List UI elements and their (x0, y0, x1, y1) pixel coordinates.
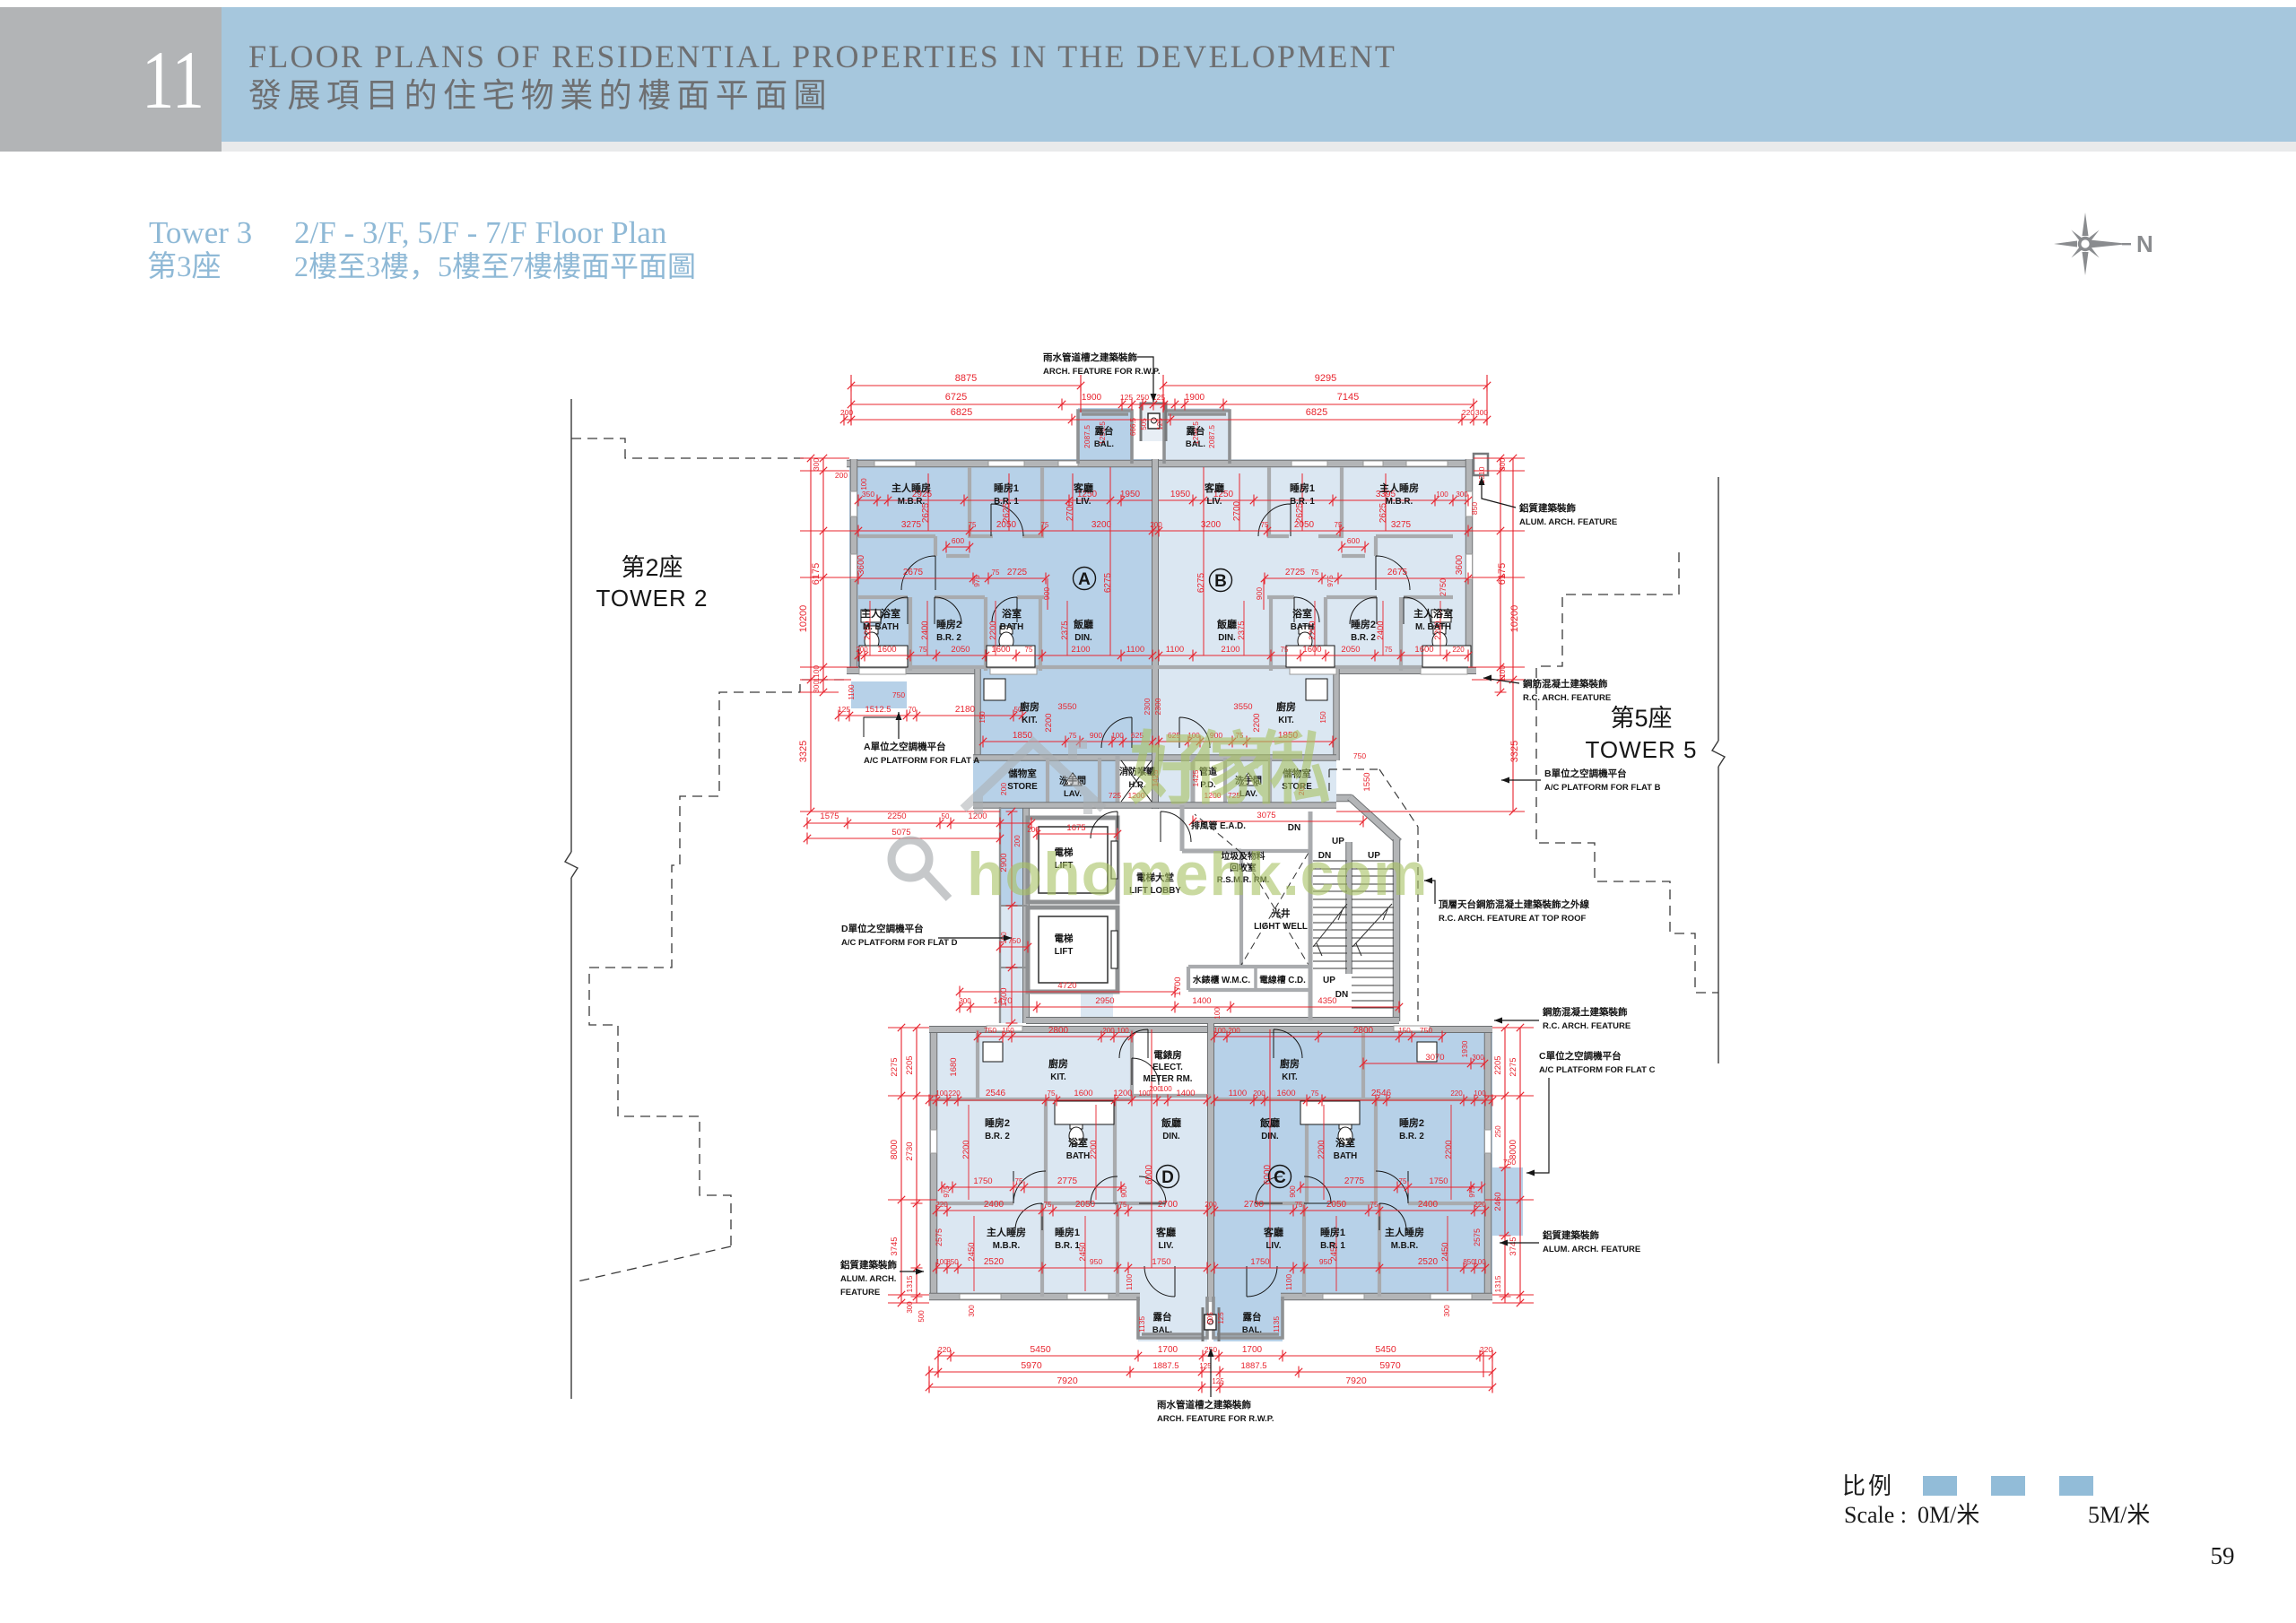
svg-text:客廳: 客廳 (1204, 482, 1224, 494)
svg-text:2450: 2450 (967, 1242, 977, 1261)
svg-text:2700: 2700 (1244, 1200, 1265, 1210)
svg-text:2950: 2950 (1095, 996, 1114, 1006)
svg-text:1887.5: 1887.5 (1240, 1361, 1266, 1371)
svg-text:主人睡房: 主人睡房 (1385, 1226, 1424, 1238)
svg-text:LIV.: LIV. (1158, 1241, 1173, 1251)
svg-text:150: 150 (1319, 711, 1327, 724)
svg-text:2087.5: 2087.5 (1207, 425, 1216, 448)
svg-text:FLOOR PLANS OF RESIDENTIAL PRO: FLOOR PLANS OF RESIDENTIAL PROPERTIES IN… (248, 39, 1396, 74)
svg-text:100: 100 (1117, 1027, 1129, 1035)
svg-text:M. BATH: M. BATH (1415, 622, 1451, 632)
svg-text:2200: 2200 (1044, 713, 1054, 732)
svg-text:發展項目的住宅物業的樓面平面圖: 發展項目的住宅物業的樓面平面圖 (248, 77, 832, 115)
svg-text:300: 300 (968, 1305, 976, 1317)
svg-text:鋁質建築裝飾: 鋁質建築裝飾 (1542, 1229, 1599, 1241)
svg-text:2725: 2725 (1285, 568, 1306, 577)
svg-text:廚房: 廚房 (1276, 700, 1296, 713)
svg-text:3600: 3600 (857, 554, 866, 575)
svg-text:220: 220 (935, 1201, 948, 1209)
svg-text:300: 300 (1498, 458, 1507, 471)
svg-text:2200: 2200 (1317, 1140, 1326, 1159)
svg-text:BAL.: BAL. (1186, 439, 1205, 449)
svg-text:STORE: STORE (1007, 782, 1038, 792)
svg-text:電錶房: 電錶房 (1153, 1049, 1182, 1061)
svg-text:2200: 2200 (961, 1140, 971, 1159)
svg-text:100: 100 (1160, 1085, 1172, 1093)
svg-text:1550: 1550 (1362, 772, 1372, 791)
svg-text:2800: 2800 (1048, 1026, 1069, 1036)
svg-text:75: 75 (1048, 1089, 1056, 1098)
svg-text:2750: 2750 (1439, 578, 1448, 596)
svg-text:頂層天台鋼筋混凝土建築裝飾之外線: 頂層天台鋼筋混凝土建築裝飾之外線 (1439, 898, 1589, 910)
svg-text:1887.5: 1887.5 (1152, 1361, 1178, 1371)
svg-text:3745: 3745 (890, 1237, 900, 1255)
svg-text:B.R. 2: B.R. 2 (985, 1132, 1010, 1141)
svg-text:220: 220 (1462, 408, 1474, 417)
svg-text:2700: 2700 (1158, 1200, 1178, 1210)
svg-text:250: 250 (1136, 393, 1149, 402)
svg-text:ARCH. FEATURE FOR R.W.P.: ARCH. FEATURE FOR R.W.P. (1157, 1414, 1274, 1424)
svg-text:100: 100 (935, 1089, 948, 1098)
svg-text:3550: 3550 (1057, 702, 1076, 712)
svg-text:主人睡房: 主人睡房 (1379, 482, 1419, 494)
svg-text:9295: 9295 (1315, 373, 1336, 384)
svg-text:B.R. 2: B.R. 2 (1351, 633, 1376, 643)
svg-text:300: 300 (1472, 1054, 1484, 1062)
svg-text:10200: 10200 (798, 605, 809, 633)
svg-text:浴室: 浴室 (1292, 607, 1312, 620)
svg-text:BATH: BATH (1066, 1151, 1090, 1161)
svg-text:220: 220 (948, 1089, 961, 1098)
svg-text:2575: 2575 (1473, 1228, 1482, 1246)
svg-text:300: 300 (1443, 1305, 1451, 1317)
svg-text:2087.5: 2087.5 (1083, 425, 1091, 448)
svg-text:TOWER 2: TOWER 2 (596, 585, 709, 612)
svg-text:200: 200 (1027, 826, 1039, 834)
svg-text:1100: 1100 (1284, 1274, 1293, 1291)
svg-text:10200: 10200 (1509, 605, 1520, 633)
svg-text:2200: 2200 (1444, 1140, 1454, 1159)
svg-text:雨水管道槽之建築裝飾: 雨水管道槽之建築裝飾 (1157, 1399, 1251, 1410)
svg-text:900: 900 (1120, 1185, 1128, 1198)
svg-text:1600: 1600 (991, 645, 1010, 655)
svg-text:7920: 7920 (1345, 1376, 1367, 1386)
svg-text:睡房1: 睡房1 (1055, 1226, 1080, 1238)
svg-text:2050: 2050 (1326, 1200, 1347, 1210)
svg-text:A/C PLATFORM FOR FLAT A: A/C PLATFORM FOR FLAT A (864, 756, 979, 766)
svg-text:2205: 2205 (1493, 1055, 1503, 1074)
svg-text:B.R. 2: B.R. 2 (936, 633, 961, 643)
svg-text:電梯: 電梯 (1055, 933, 1074, 944)
svg-text:1135: 1135 (1272, 1316, 1281, 1333)
svg-text:2675: 2675 (1387, 568, 1408, 577)
svg-text:A單位之空調機平台: A單位之空調機平台 (864, 741, 946, 752)
svg-text:900: 900 (1289, 1185, 1297, 1198)
svg-text:125: 125 (1156, 418, 1164, 430)
svg-text:5M/米: 5M/米 (2088, 1502, 2150, 1528)
svg-text:75: 75 (1025, 646, 1033, 654)
svg-text:M.B.R.: M.B.R. (898, 497, 926, 507)
svg-text:200: 200 (835, 471, 848, 480)
svg-text:220: 220 (1450, 1089, 1463, 1098)
svg-text:3550: 3550 (1233, 702, 1252, 712)
svg-text:1700: 1700 (1242, 1345, 1263, 1355)
svg-text:600: 600 (952, 536, 964, 545)
svg-text:BATH: BATH (1000, 622, 1023, 632)
svg-text:M.B.R.: M.B.R. (1386, 497, 1413, 507)
svg-text:6175: 6175 (1497, 563, 1508, 585)
svg-text:5970: 5970 (1379, 1360, 1401, 1371)
svg-text:750: 750 (984, 1026, 996, 1035)
svg-text:75: 75 (1335, 521, 1343, 529)
svg-text:LIGHT WELL: LIGHT WELL (1254, 922, 1308, 932)
svg-text:R.C. ARCH. FEATURE: R.C. ARCH. FEATURE (1523, 693, 1611, 703)
svg-text:2050: 2050 (1075, 1200, 1096, 1210)
svg-text:1600: 1600 (1074, 1089, 1092, 1098)
svg-text:B.R. 1: B.R. 1 (1320, 1241, 1345, 1251)
svg-text:B單位之空調機平台: B單位之空調機平台 (1544, 768, 1627, 779)
svg-text:N: N (2136, 230, 2153, 257)
svg-text:飯廳: 飯廳 (1216, 618, 1237, 630)
svg-text:3745: 3745 (1509, 1237, 1518, 1255)
svg-text:B.R. 1: B.R. 1 (1290, 497, 1315, 507)
svg-text:主人睡房: 主人睡房 (987, 1226, 1026, 1238)
svg-text:浴室: 浴室 (1335, 1136, 1355, 1149)
svg-text:900: 900 (1255, 587, 1264, 600)
svg-text:2775: 2775 (1344, 1176, 1365, 1186)
svg-text:TOWER 5: TOWER 5 (1586, 736, 1698, 763)
svg-text:BAL.: BAL. (1152, 1325, 1172, 1335)
svg-text:1400: 1400 (1176, 1089, 1195, 1098)
svg-text:BATH: BATH (1334, 1151, 1357, 1161)
svg-text:1600: 1600 (1302, 645, 1321, 655)
svg-text:11: 11 (142, 34, 204, 126)
svg-text:2675: 2675 (903, 568, 924, 577)
svg-text:廚房: 廚房 (1048, 1057, 1068, 1070)
svg-text:鋼筋混凝土建築裝飾: 鋼筋混凝土建築裝飾 (1522, 678, 1608, 690)
svg-text:6000: 6000 (1144, 1164, 1154, 1185)
svg-text:Tower 3: Tower 3 (149, 215, 252, 250)
svg-text:睡房1: 睡房1 (994, 482, 1019, 494)
svg-text:2300: 2300 (1153, 698, 1162, 715)
svg-text:B: B (1214, 572, 1227, 591)
svg-text:1100: 1100 (1166, 645, 1184, 655)
svg-text:2800: 2800 (1353, 1026, 1374, 1036)
svg-text:750: 750 (1353, 751, 1366, 760)
svg-text:客廳: 客廳 (1073, 482, 1093, 494)
svg-text:2樓至3樓，5樓至7樓樓面平面圖: 2樓至3樓，5樓至7樓樓面平面圖 (294, 250, 696, 282)
svg-text:75: 75 (1281, 646, 1289, 654)
svg-text:950: 950 (1090, 1257, 1102, 1266)
svg-text:廚房: 廚房 (1020, 700, 1039, 713)
svg-text:雨水管道槽之建築裝飾: 雨水管道槽之建築裝飾 (1043, 352, 1137, 363)
svg-text:75: 75 (1399, 1177, 1407, 1185)
svg-text:2725: 2725 (1007, 568, 1028, 577)
svg-text:2275: 2275 (890, 1057, 900, 1076)
svg-text:300: 300 (1475, 408, 1488, 417)
svg-text:ALUM. ARCH. FEATURE: ALUM. ARCH. FEATURE (1519, 517, 1617, 527)
svg-text:2775: 2775 (1057, 1176, 1078, 1186)
svg-text:2050: 2050 (1341, 645, 1360, 655)
svg-text:DIN.: DIN. (1218, 633, 1236, 643)
svg-text:KIT.: KIT. (1050, 1072, 1066, 1082)
svg-text:59: 59 (2211, 1542, 2235, 1569)
svg-text:70: 70 (909, 706, 917, 714)
svg-text:1315: 1315 (1493, 1275, 1502, 1292)
svg-text:比例: 比例 (1842, 1473, 1894, 1499)
svg-text:浴室: 浴室 (1002, 607, 1022, 620)
svg-text:75: 75 (1311, 568, 1319, 577)
svg-text:2375: 2375 (1237, 621, 1247, 639)
svg-text:5450: 5450 (1375, 1344, 1396, 1355)
svg-text:100: 100 (1213, 1007, 1222, 1020)
svg-text:2100: 2100 (1221, 645, 1239, 655)
svg-text:75: 75 (1311, 1089, 1319, 1098)
svg-text:LIV.: LIV. (1075, 497, 1091, 507)
svg-text:1950: 1950 (1170, 490, 1191, 499)
svg-text:3275: 3275 (1391, 520, 1412, 530)
svg-text:8000: 8000 (890, 1139, 900, 1159)
svg-text:75: 75 (1069, 732, 1077, 740)
svg-text:6825: 6825 (951, 407, 972, 418)
svg-text:1100: 1100 (1229, 1089, 1247, 1098)
svg-text:1700: 1700 (1158, 1345, 1178, 1355)
svg-text:C單位之空調機平台: C單位之空調機平台 (1539, 1050, 1622, 1062)
svg-text:UP: UP (1323, 976, 1335, 985)
svg-text:6725: 6725 (945, 392, 967, 403)
svg-text:飯廳: 飯廳 (1073, 618, 1093, 630)
svg-text:1470: 1470 (993, 996, 1012, 1006)
svg-text:505: 505 (1140, 418, 1148, 430)
svg-text:露台: 露台 (1153, 1311, 1172, 1323)
svg-text:7145: 7145 (1337, 392, 1359, 403)
svg-text:鋼筋混凝土建築裝飾: 鋼筋混凝土建築裝飾 (1542, 1006, 1628, 1018)
svg-text:2400: 2400 (1376, 621, 1386, 639)
svg-text:750: 750 (892, 690, 905, 699)
svg-text:975: 975 (1326, 575, 1335, 587)
svg-text:ALUM. ARCH.: ALUM. ARCH. (840, 1274, 896, 1284)
svg-text:75: 75 (1261, 521, 1269, 529)
svg-text:150: 150 (1002, 1027, 1014, 1035)
svg-text:2520: 2520 (984, 1257, 1004, 1267)
svg-text:6275: 6275 (1103, 572, 1113, 593)
svg-text:1700: 1700 (1173, 976, 1183, 995)
svg-text:750: 750 (1503, 1158, 1516, 1167)
svg-text:鋁質建築裝飾: 鋁質建築裝飾 (1518, 502, 1576, 514)
svg-text:150: 150 (1398, 1027, 1411, 1035)
svg-text:2050: 2050 (951, 645, 970, 655)
svg-text:725: 725 (1109, 791, 1121, 800)
svg-text:5970: 5970 (1021, 1360, 1042, 1371)
svg-text:主人浴室: 主人浴室 (861, 607, 900, 620)
svg-text:2100: 2100 (1071, 645, 1090, 655)
svg-text:75: 75 (919, 646, 927, 654)
svg-text:75: 75 (1015, 1177, 1023, 1185)
svg-text:A: A (1078, 570, 1091, 589)
svg-text:睡房2: 睡房2 (936, 618, 961, 630)
svg-text:DN: DN (1288, 823, 1300, 833)
svg-text:0M/米: 0M/米 (1918, 1502, 1979, 1528)
svg-text:2520: 2520 (1418, 1257, 1439, 1267)
svg-text:DIN.: DIN. (1074, 633, 1092, 643)
svg-text:6825: 6825 (1306, 407, 1327, 418)
svg-text:排風管 E.A.D.: 排風管 E.A.D. (1191, 820, 1246, 831)
svg-text:1200: 1200 (1113, 1089, 1132, 1098)
svg-text:3325: 3325 (798, 741, 809, 762)
svg-text:5450: 5450 (1030, 1344, 1051, 1355)
svg-text:1100: 1100 (1126, 645, 1144, 655)
svg-text:2300: 2300 (1143, 698, 1152, 715)
svg-text:1850: 1850 (1013, 731, 1033, 741)
svg-text:1600: 1600 (877, 645, 896, 655)
svg-text:75: 75 (969, 521, 977, 529)
svg-text:850: 850 (1470, 502, 1479, 515)
svg-text:7920: 7920 (1057, 1376, 1078, 1386)
svg-text:睡房2: 睡房2 (1399, 1116, 1424, 1129)
svg-text:3070: 3070 (1425, 1053, 1444, 1063)
svg-text:100: 100 (1111, 732, 1124, 740)
svg-text:第3座: 第3座 (147, 250, 222, 283)
svg-text:1680: 1680 (949, 1057, 959, 1076)
svg-text:200: 200 (1205, 1201, 1217, 1209)
svg-text:75: 75 (1041, 521, 1049, 529)
svg-text:hohomehk.com: hohomehk.com (967, 840, 1429, 908)
svg-text:220: 220 (938, 1345, 951, 1354)
svg-text:2400: 2400 (920, 621, 930, 639)
svg-text:220: 220 (1480, 1345, 1492, 1354)
svg-text:B.R. 1: B.R. 1 (994, 497, 1019, 507)
svg-text:250: 250 (1494, 1125, 1502, 1138)
svg-text:975: 975 (1468, 1185, 1476, 1198)
svg-text:METER RM.: METER RM. (1144, 1074, 1193, 1084)
svg-text:水錶櫃 W.M.C.: 水錶櫃 W.M.C. (1193, 974, 1250, 985)
svg-text:1750: 1750 (1152, 1257, 1170, 1267)
svg-text:150: 150 (978, 711, 987, 724)
svg-text:第2座: 第2座 (621, 554, 683, 581)
svg-text:220: 220 (1474, 1201, 1486, 1209)
svg-text:8000: 8000 (1509, 1139, 1518, 1159)
svg-text:睡房1: 睡房1 (1290, 482, 1315, 494)
svg-text:C: C (1274, 1168, 1286, 1187)
svg-text:666.5: 666.5 (1129, 417, 1137, 436)
svg-text:300: 300 (812, 458, 821, 471)
svg-text:2546: 2546 (1371, 1089, 1392, 1098)
svg-text:A/C PLATFORM FOR FLAT D: A/C PLATFORM FOR FLAT D (841, 938, 958, 948)
svg-text:950: 950 (1319, 1257, 1332, 1266)
svg-text:1750: 1750 (1250, 1257, 1269, 1267)
svg-text:KIT.: KIT. (1022, 716, 1038, 725)
svg-text:125: 125 (1199, 1362, 1212, 1370)
svg-text:4720: 4720 (1057, 981, 1076, 991)
svg-text:B.R. 1: B.R. 1 (1055, 1241, 1080, 1251)
svg-text:1930: 1930 (1460, 1040, 1469, 1057)
svg-text:客廳: 客廳 (1155, 1226, 1176, 1238)
svg-text:2546: 2546 (986, 1089, 1006, 1098)
svg-text:2450: 2450 (1440, 1242, 1450, 1261)
svg-text:2700: 2700 (1065, 500, 1075, 521)
svg-text:200: 200 (1228, 1027, 1240, 1035)
svg-text:1400: 1400 (1192, 996, 1211, 1006)
svg-text:6000: 6000 (1263, 1164, 1273, 1185)
svg-text:1100: 1100 (848, 684, 856, 700)
svg-text:FEATURE: FEATURE (840, 1288, 880, 1298)
svg-text:電線槽 C.D.: 電線槽 C.D. (1259, 974, 1306, 985)
svg-text:220: 220 (1452, 646, 1465, 654)
svg-text:100: 100 (1474, 1089, 1486, 1098)
svg-text:2375: 2375 (1060, 621, 1070, 639)
svg-text:75: 75 (1044, 1201, 1052, 1209)
svg-text:975: 975 (973, 575, 981, 587)
svg-text:1315: 1315 (905, 1275, 914, 1292)
svg-text:900: 900 (1042, 587, 1051, 600)
svg-text:125: 125 (838, 705, 850, 714)
svg-text:8875: 8875 (955, 373, 977, 384)
svg-text:好傢俬: 好傢俬 (1129, 725, 1330, 813)
svg-text:200: 200 (856, 646, 868, 654)
svg-text:B.R. 2: B.R. 2 (1399, 1132, 1424, 1141)
svg-text:飯廳: 飯廳 (1161, 1116, 1181, 1129)
svg-text:飯廳: 飯廳 (1259, 1116, 1280, 1129)
svg-text:A/C PLATFORM FOR FLAT C: A/C PLATFORM FOR FLAT C (1539, 1065, 1656, 1075)
svg-text:BAL.: BAL. (1242, 1325, 1262, 1335)
svg-text:300: 300 (812, 681, 821, 693)
svg-text:Scale :: Scale : (1844, 1502, 1907, 1528)
svg-text:D: D (1161, 1168, 1174, 1187)
svg-text:125: 125 (1120, 393, 1133, 402)
svg-text:1900: 1900 (1082, 393, 1102, 403)
svg-text:第5座: 第5座 (1610, 705, 1672, 732)
svg-text:975: 975 (943, 1185, 951, 1198)
svg-text:D單位之空調機平台: D單位之空調機平台 (841, 923, 924, 934)
svg-text:3200: 3200 (1091, 520, 1112, 530)
svg-text:300: 300 (959, 997, 971, 1005)
svg-text:2400: 2400 (984, 1200, 1004, 1210)
svg-text:露台: 露台 (1187, 425, 1205, 437)
svg-text:75: 75 (1119, 1201, 1127, 1209)
svg-text:75: 75 (992, 568, 1000, 577)
svg-text:露台: 露台 (1095, 425, 1114, 437)
svg-text:睡房2: 睡房2 (1351, 618, 1376, 630)
svg-text:主人睡房: 主人睡房 (891, 482, 931, 494)
svg-text:R.C. ARCH. FEATURE: R.C. ARCH. FEATURE (1543, 1021, 1631, 1031)
svg-text:2400: 2400 (1418, 1200, 1439, 1210)
svg-text:1750: 1750 (973, 1176, 992, 1186)
svg-text:LIFT: LIFT (1055, 947, 1074, 957)
svg-text:6175: 6175 (811, 563, 822, 585)
svg-text:5075: 5075 (891, 828, 910, 838)
svg-text:1600: 1600 (1276, 1089, 1295, 1098)
svg-text:200: 200 (1102, 1027, 1115, 1035)
svg-text:100: 100 (1474, 1258, 1486, 1266)
svg-text:600: 600 (1347, 536, 1360, 545)
svg-text:LIV.: LIV. (1206, 497, 1222, 507)
svg-text:750: 750 (1420, 1026, 1432, 1035)
svg-text:2250: 2250 (887, 811, 906, 821)
svg-text:光井: 光井 (1271, 907, 1291, 919)
svg-text:1512.5: 1512.5 (865, 705, 891, 715)
svg-text:900: 900 (1090, 731, 1102, 740)
svg-text:M.B.R.: M.B.R. (1391, 1241, 1419, 1251)
svg-text:R.C. ARCH. FEATURE AT TOP ROOF: R.C. ARCH. FEATURE AT TOP ROOF (1439, 914, 1587, 924)
svg-text:2700: 2700 (1232, 500, 1242, 521)
svg-text:DN: DN (1335, 990, 1348, 1000)
svg-text:M.B.R.: M.B.R. (993, 1241, 1021, 1251)
svg-text:DIN.: DIN. (1162, 1132, 1180, 1141)
svg-text:850: 850 (946, 1258, 959, 1266)
svg-text:500: 500 (918, 1310, 926, 1323)
svg-text:KIT.: KIT. (1282, 1072, 1298, 1082)
svg-text:DIN.: DIN. (1261, 1132, 1279, 1141)
